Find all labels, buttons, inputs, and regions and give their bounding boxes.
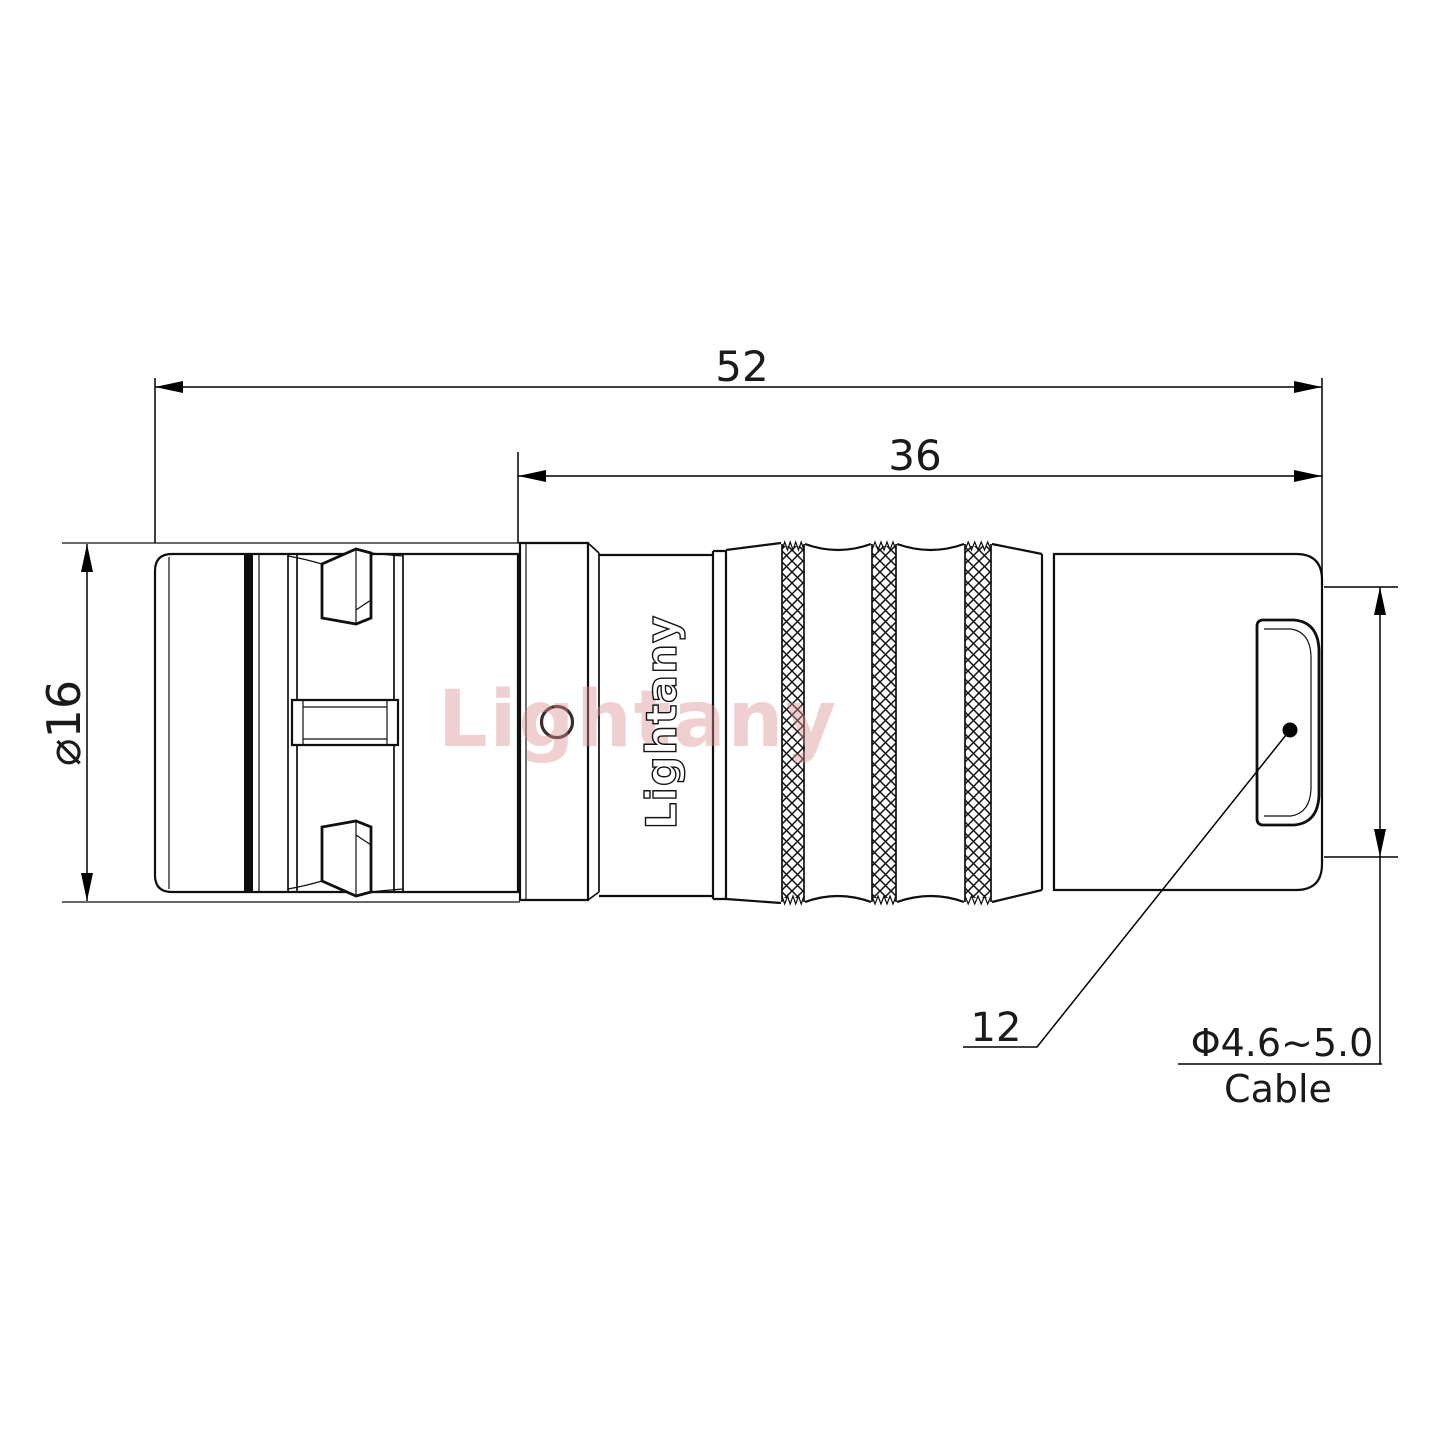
arrowhead-right — [1294, 381, 1322, 393]
technical-drawing-page: Lightany Lightany 52 36 ⌀16 Φ4.6~5.0 Cab… — [0, 0, 1440, 1440]
dim-label-12: 12 — [971, 1005, 1022, 1051]
latch-tab-top — [322, 549, 371, 624]
cable-size-label: Φ4.6~5.0 — [1191, 1021, 1374, 1065]
dim-label-dia16: ⌀16 — [37, 680, 91, 766]
dim-label-52: 52 — [715, 342, 768, 391]
connector-drawing: Lightany Lightany 52 36 ⌀16 Φ4.6~5.0 Cab… — [0, 0, 1440, 1440]
brand-engraving: Lightany — [637, 615, 686, 830]
arrowhead-bottom — [1374, 829, 1386, 857]
dim-label-36: 36 — [888, 431, 941, 480]
arrowhead-left — [518, 470, 546, 482]
knurl-flare-right — [992, 544, 1042, 902]
dimension-rear-36: 36 — [518, 431, 1322, 543]
arrowhead-top — [1374, 587, 1386, 615]
cable-entry-bush — [1257, 620, 1319, 825]
arrowhead-top — [81, 544, 93, 572]
knurl-band-2 — [872, 542, 896, 904]
latch-tab-bottom — [322, 821, 371, 896]
arrowhead-left — [155, 381, 183, 393]
knurl-band-3 — [965, 542, 991, 904]
cable-word-label: Cable — [1224, 1067, 1332, 1111]
dimension-diameter-16: ⌀16 — [37, 544, 93, 901]
arrowhead-right — [1294, 470, 1322, 482]
arrowhead-bottom — [81, 873, 93, 901]
knurl-right-ring — [1042, 554, 1054, 890]
shell-groove-band — [244, 555, 253, 891]
